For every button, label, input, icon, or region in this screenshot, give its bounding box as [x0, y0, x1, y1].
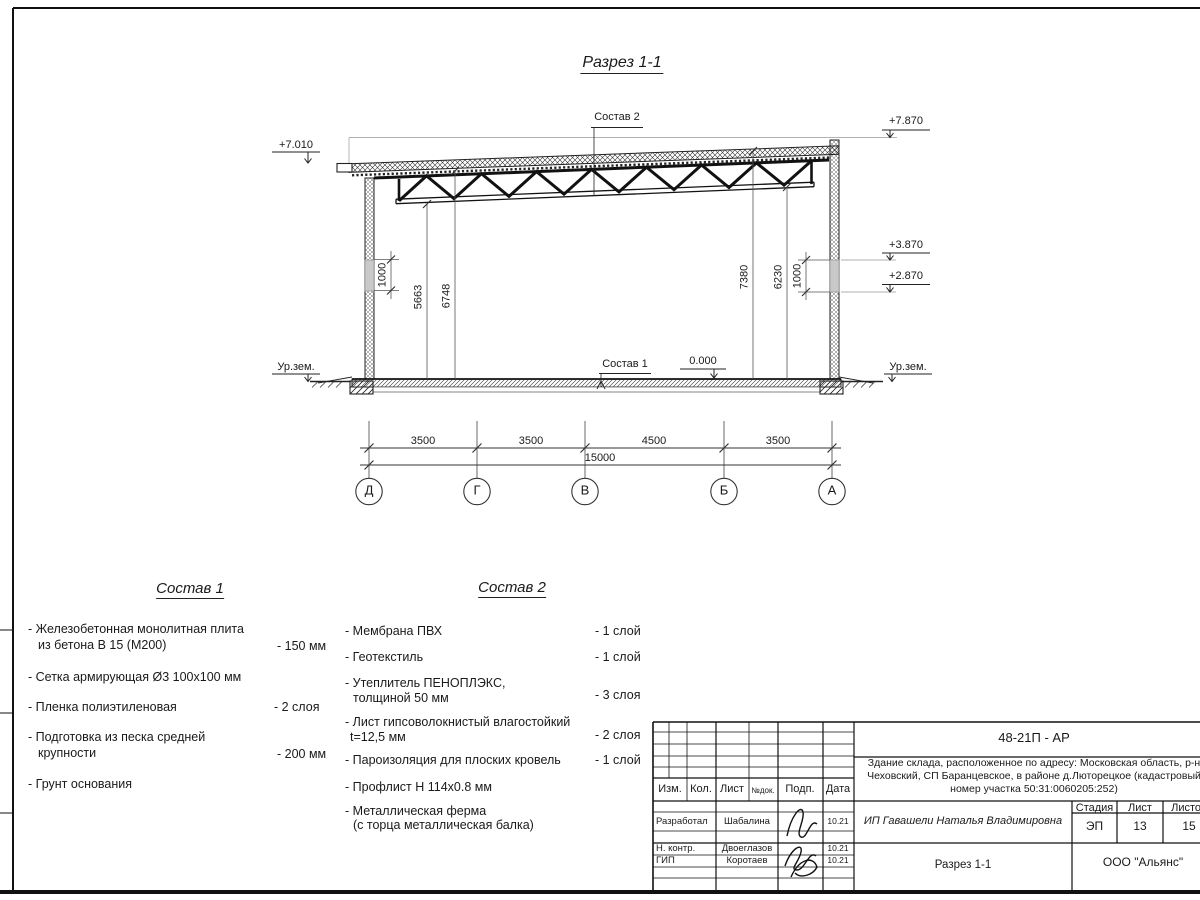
date-ncontrol: 10.21 [827, 844, 848, 854]
sostav1-item-1: - Железобетонная монолитная плита [28, 622, 244, 636]
sostav2-value-4: - 2 слоя [595, 728, 640, 742]
client-name: ИП Гавашели Наталья Владимировна [864, 815, 1062, 828]
dim-total: 15000 [585, 452, 616, 465]
sostav1-item-1b: из бетона В 15 (М200) [38, 638, 166, 652]
elevation-window-bottom: +2.870 [889, 270, 923, 283]
name-gip: Коротаев [726, 856, 767, 867]
role-gip: ГИП [656, 856, 675, 867]
dim-span-3: 4500 [642, 435, 666, 448]
sostav1-value-4: - 200 мм [277, 747, 326, 761]
date-developer: 10.21 [827, 817, 848, 827]
sostav1-item-4b: крупности [38, 746, 96, 760]
eave-fascia [337, 164, 352, 173]
col-podp: Подп. [785, 783, 814, 796]
sostav2-item-7: - Металлическая ферма [345, 804, 486, 818]
col-ndok: №док. [751, 786, 774, 795]
stage-value: ЭП [1086, 820, 1103, 834]
right-window [830, 260, 839, 292]
sheet-title: Разрез 1-1 [935, 859, 991, 872]
right-wall [830, 140, 839, 379]
sostav1-item-2: - Сетка армирующая Ø3 100х100 мм [28, 670, 241, 684]
sostav2-item-5: - Пароизоляция для плоских кровель [345, 753, 561, 767]
drawing-title: Разрез 1-1 [580, 54, 663, 74]
sostav1-item-5: - Грунт основания [28, 777, 132, 791]
elevation-right-top: +7.870 [889, 115, 923, 128]
sheets-label: Листов [1171, 802, 1200, 815]
sostav1-leader-label: Состав 1 [602, 358, 648, 371]
sostav2-item-3: - Утеплитель ПЕНОПЛЭКС, [345, 676, 505, 690]
role-developer: Разработал [656, 817, 708, 828]
stage-label: Стадия [1076, 802, 1114, 815]
signature-2 [785, 847, 816, 870]
floor-slab [352, 379, 841, 387]
sheet-number: 13 [1133, 820, 1146, 834]
sostav1-value-3: - 2 слоя [274, 700, 319, 714]
left-window [365, 260, 374, 291]
elevation-window-top: +3.870 [889, 239, 923, 252]
dim-span-1: 3500 [411, 435, 435, 448]
sostav2-value-1: - 1 слой [595, 624, 641, 638]
dim-right-window: 1000 [792, 264, 805, 288]
col-data: Дата [826, 783, 850, 796]
sostav1-title: Состав 1 [156, 580, 224, 599]
ground-level-right: Ур.зем. [889, 361, 926, 374]
project-description-line3: номер участка 50:31:0060205:252) [950, 783, 1118, 795]
sostav2-item-4b: t=12,5 мм [350, 730, 406, 744]
axis-bubble-a: А [828, 484, 837, 499]
sostav2-item-7b: (с торца металлическая балка) [353, 818, 534, 832]
dim-6230: 6230 [773, 265, 786, 289]
signature-1 [787, 809, 817, 837]
axis-bubble-v: В [581, 484, 590, 499]
sostav2-leader-label: Состав 2 [594, 111, 640, 124]
project-description-line1: Здание склада, расположенное по адресу: … [868, 757, 1200, 769]
sostav1-item-4: - Подготовка из песка средней [28, 730, 205, 744]
sostav1-value-1: - 150 мм [277, 639, 326, 653]
axis-bubble-g: Г [473, 484, 480, 499]
sand-base [373, 387, 820, 392]
name-developer: Шабалина [724, 817, 770, 828]
sostav2-item-3b: толщиной 50 мм [353, 691, 449, 705]
col-list: Лист [720, 783, 744, 796]
left-foundation [350, 381, 373, 394]
sostav2-value-5: - 1 слой [595, 753, 641, 767]
signature-3 [791, 860, 817, 877]
dim-span-2: 3500 [519, 435, 543, 448]
dim-6748: 6748 [441, 284, 454, 308]
dim-left-window: 1000 [377, 263, 390, 287]
dim-7380: 7380 [739, 265, 752, 289]
sheets-total: 15 [1182, 820, 1195, 834]
col-izm: Изм. [658, 783, 682, 796]
right-foundation [820, 381, 843, 394]
col-kol: Кол. [690, 783, 712, 796]
ground-level-left: Ур.зем. [277, 361, 314, 374]
name-ncontrol: Двоеглазов [722, 844, 773, 855]
sostav2-value-2: - 1 слой [595, 650, 641, 664]
sostav2-item-2: - Геотекстиль [345, 650, 423, 664]
dim-span-4: 3500 [766, 435, 790, 448]
axis-bubble-b: Б [720, 484, 729, 499]
project-description-line2: Чеховский, СП Баранцевское, в районе д.Л… [867, 770, 1200, 782]
elevation-left-top: +7.010 [279, 139, 313, 152]
drawing-sheet: { "drawing_title": "Разрез 1-1", "sectio… [0, 0, 1200, 900]
sheet-label: Лист [1128, 802, 1152, 815]
sostav2-value-3: - 3 слоя [595, 688, 640, 702]
sostav2-title: Состав 2 [478, 579, 546, 598]
sostav2-item-1: - Мембрана ПВХ [345, 624, 442, 638]
company-name: ООО "Альянс" [1103, 856, 1183, 870]
role-ncontrol: Н. контр. [656, 844, 695, 855]
sostav1-item-3: - Пленка полиэтиленовая [28, 700, 177, 714]
date-gip: 10.21 [827, 856, 848, 866]
elevation-zero: 0.000 [689, 355, 717, 368]
sostav2-item-4: - Лист гипсоволокнистый влагостойкий [345, 715, 570, 729]
axis-bubble-d: Д [365, 484, 374, 499]
sostav2-item-6: - Профлист Н 114х0.8 мм [345, 780, 492, 794]
truss-bottom-chord [396, 182, 814, 199]
doc-code: 48-21П - АР [998, 731, 1070, 746]
building-section [310, 138, 897, 395]
dim-5663: 5663 [413, 285, 426, 309]
